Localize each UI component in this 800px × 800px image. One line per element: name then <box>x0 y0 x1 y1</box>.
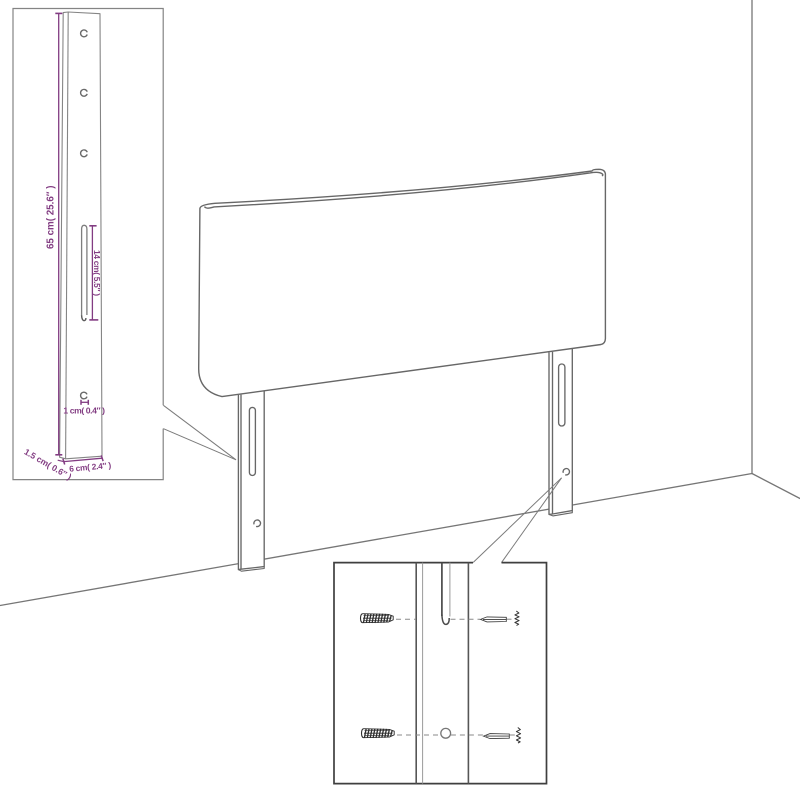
svg-text:1 cm( 0.4″ ): 1 cm( 0.4″ ) <box>63 406 105 416</box>
svg-text:14 cm( 5.5″ ): 14 cm( 5.5″ ) <box>92 250 102 296</box>
svg-text:65 cm( 25.6″ ): 65 cm( 25.6″ ) <box>45 186 56 250</box>
